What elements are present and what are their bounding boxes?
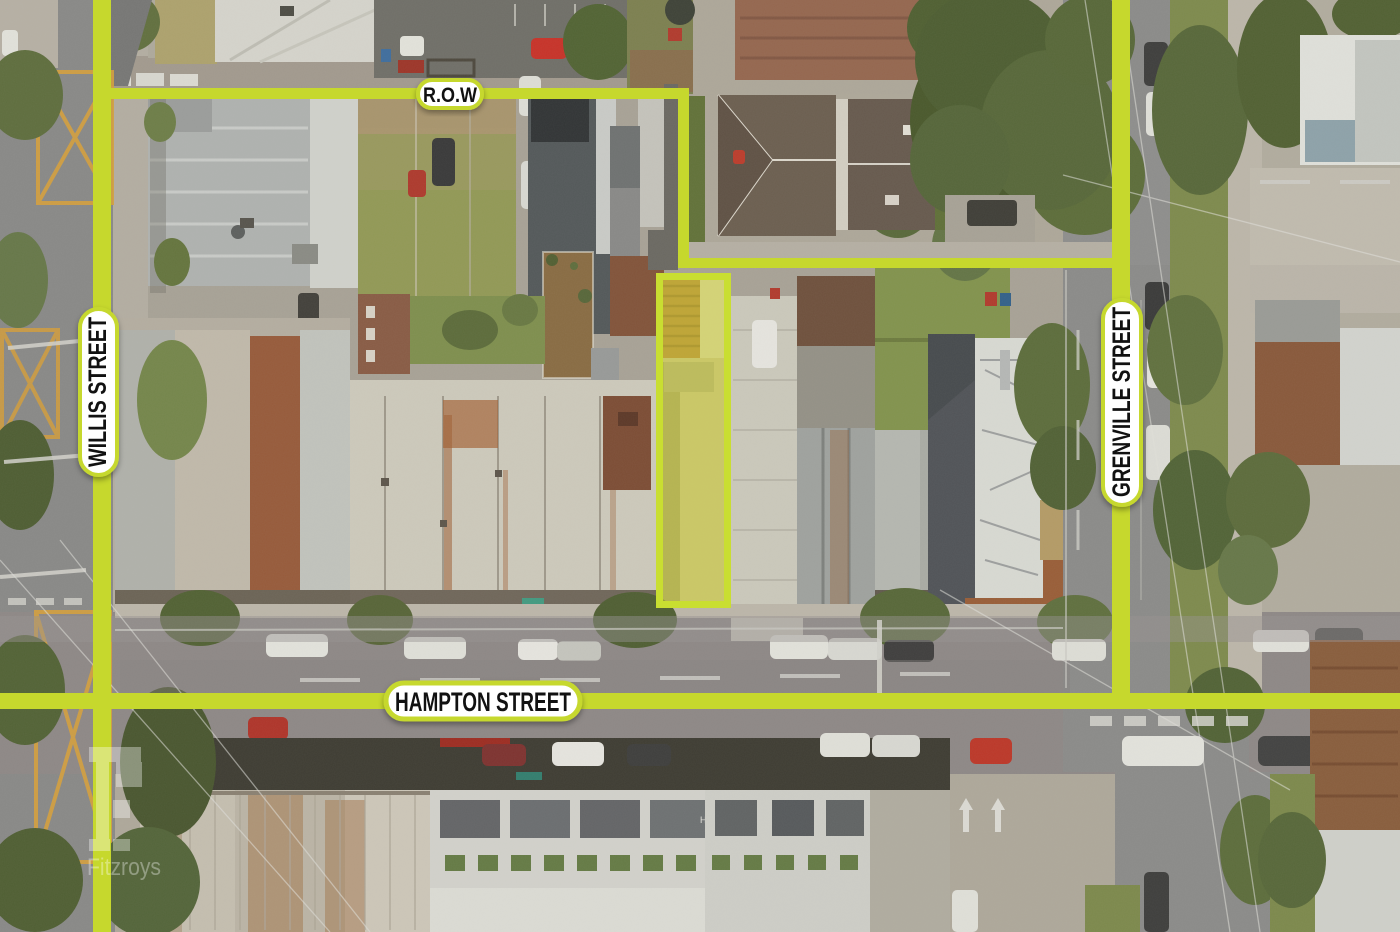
svg-text:GRENVILLE STREET: GRENVILLE STREET xyxy=(1108,307,1136,497)
svg-text:R.O.W: R.O.W xyxy=(423,84,477,107)
svg-text:Fitzroys: Fitzroys xyxy=(87,854,161,881)
svg-text:HAMPTON STREET: HAMPTON STREET xyxy=(395,687,571,717)
svg-text:WILLIS STREET: WILLIS STREET xyxy=(84,317,112,467)
